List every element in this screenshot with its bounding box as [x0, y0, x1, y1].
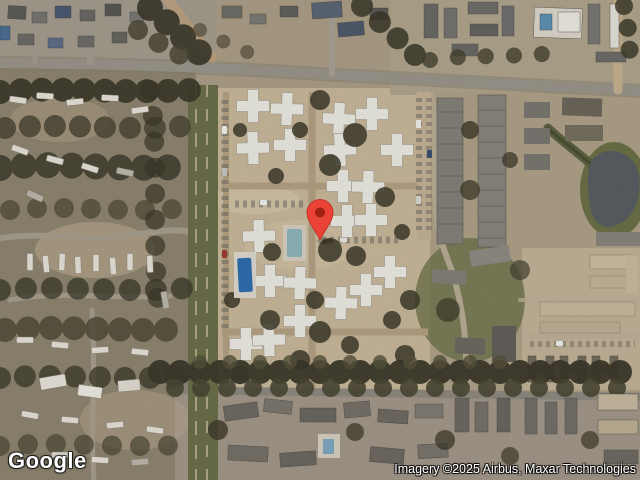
map-canvas[interactable]: Google Imagery ©2025 Airbus, Maxar Techn…	[0, 0, 640, 480]
pin-dot	[315, 208, 325, 218]
google-logo[interactable]: Google	[8, 448, 87, 474]
satellite-imagery	[0, 0, 640, 480]
imagery-attribution: Imagery ©2025 Airbus, Maxar Technologies	[394, 462, 636, 476]
